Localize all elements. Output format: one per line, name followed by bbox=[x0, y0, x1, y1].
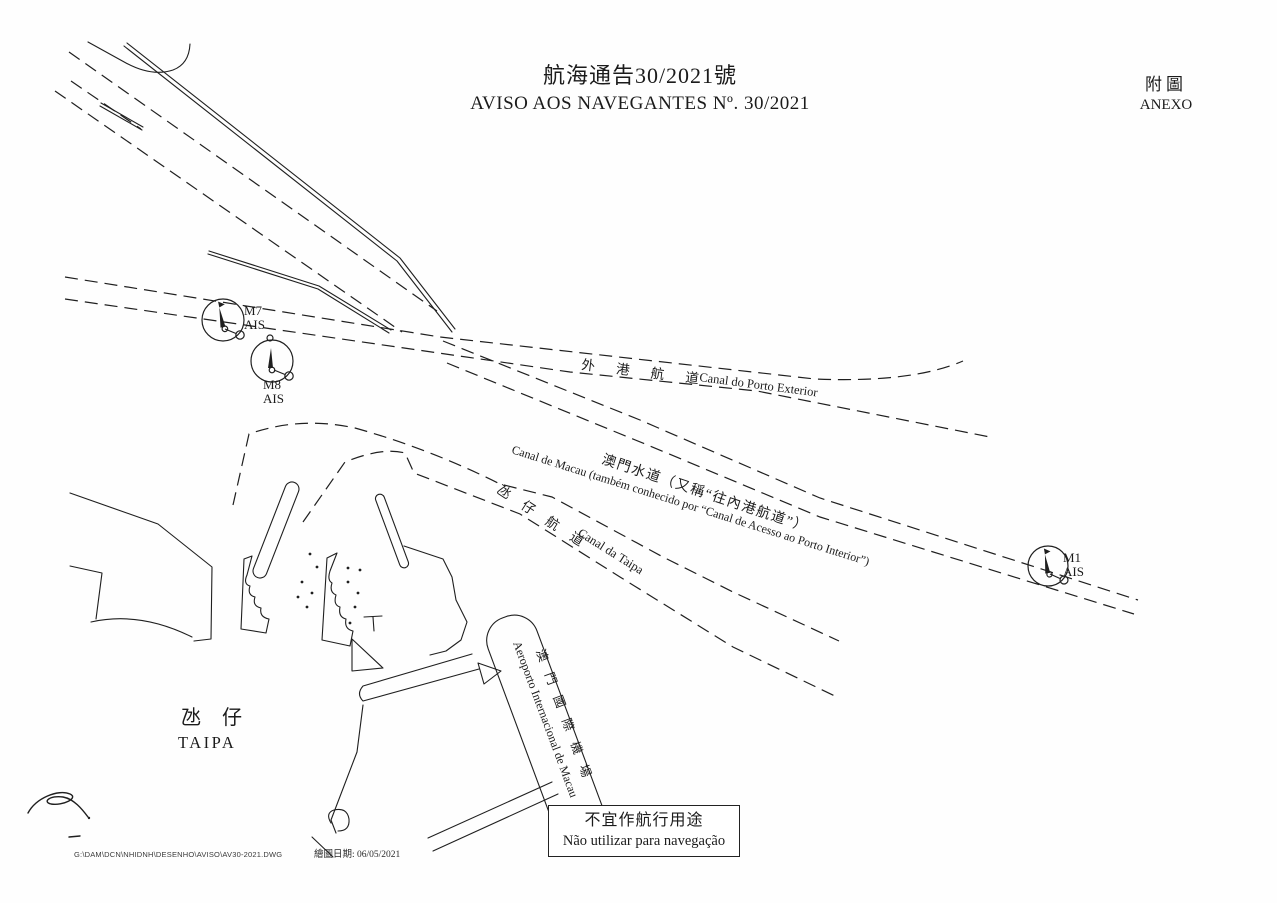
place-label-taipa-zh: 氹 仔 bbox=[181, 706, 250, 729]
footer-drawing-date: 繪圖日期: 06/05/2021 bbox=[314, 846, 400, 860]
buoy-symbols bbox=[202, 299, 1068, 586]
buoy-m1-name: M1 bbox=[1063, 550, 1081, 565]
buoy-m8-name: M8 bbox=[263, 377, 281, 392]
annex-label-pt: ANEXO bbox=[1118, 96, 1214, 116]
title-block: 航海通告30/2021號 AVISO AOS NAVEGANTES Nº. 30… bbox=[390, 62, 890, 115]
notice-box: 不宜作航行用途 Não utilizar para navegação bbox=[548, 805, 740, 857]
chart-page: 外 港 航 道 Canal do Porto Exterior 澳門水道（又稱“… bbox=[0, 0, 1277, 903]
channel-label-macau-pt: Canal de Macau (também conhecido por “Ca… bbox=[510, 443, 871, 569]
channel-approach-line bbox=[71, 81, 141, 129]
channel-label-porto-exterior-zh: 外 港 航 道 bbox=[581, 357, 709, 387]
notice-text-pt: Não utilizar para navegação bbox=[563, 832, 725, 851]
channel-porto-exterior-line bbox=[65, 299, 990, 437]
buoy-m7-type: AIS bbox=[244, 317, 265, 332]
channel-label-porto-exterior-pt: Canal do Porto Exterior bbox=[699, 370, 820, 400]
notice-text-zh: 不宜作航行用途 bbox=[584, 811, 703, 832]
small-jetty bbox=[329, 809, 349, 831]
mooring-dots bbox=[297, 553, 362, 625]
channel-lines-group bbox=[55, 52, 1138, 698]
coastline-airport-west bbox=[404, 546, 467, 655]
taxiway-strip-south bbox=[428, 782, 552, 838]
channel-macau-line bbox=[443, 341, 1138, 600]
buoy-m8-type: AIS bbox=[263, 391, 284, 406]
coastline-taipa-left-quay bbox=[70, 566, 102, 619]
breakwater-taipa bbox=[91, 619, 192, 637]
buoy-m1-symbol bbox=[1028, 546, 1068, 586]
coastline-spit bbox=[352, 639, 383, 671]
channel-approach-line bbox=[69, 52, 437, 311]
taxiway-strip-south bbox=[433, 794, 558, 851]
place-label-taipa-pt: TAIPA bbox=[178, 733, 236, 752]
pier-outline bbox=[374, 493, 410, 569]
page-title-pt: AVISO AOS NAVEGANTES Nº. 30/2021 bbox=[390, 92, 890, 116]
signature-mark bbox=[28, 793, 90, 837]
footer-file-path: G:\DAM\DCN\NHIDNH\DESENHO\AVISO\AV30-202… bbox=[74, 850, 282, 859]
pier-t-mark bbox=[364, 616, 382, 631]
channel-approach-line bbox=[55, 91, 402, 332]
channel-label-taipa-pt: Canal da Taipa bbox=[575, 526, 646, 578]
buoy-m7-name: M7 bbox=[244, 303, 263, 318]
channel-label-taipa-zh: 氹 仔 航 道 bbox=[494, 482, 591, 552]
buoy-m1-type: AIS bbox=[1063, 564, 1084, 579]
buoy-m8-symbol bbox=[251, 335, 293, 382]
map-canvas: 外 港 航 道 Canal do Porto Exterior 澳門水道（又稱“… bbox=[0, 0, 1277, 903]
annex-block: 附圖 ANEXO bbox=[1118, 74, 1214, 116]
channel-porto-exterior-line bbox=[65, 277, 963, 380]
channel-taipa-line bbox=[303, 451, 839, 698]
terminal-block-west bbox=[241, 556, 269, 633]
page-title-zh: 航海通告30/2021號 bbox=[390, 62, 890, 90]
taxiway-strip bbox=[360, 654, 480, 701]
bridge-line bbox=[208, 254, 389, 333]
pier-outline bbox=[251, 480, 301, 580]
annex-label-zh: 附圖 bbox=[1118, 74, 1214, 96]
coastline-taipa-west bbox=[70, 493, 212, 641]
